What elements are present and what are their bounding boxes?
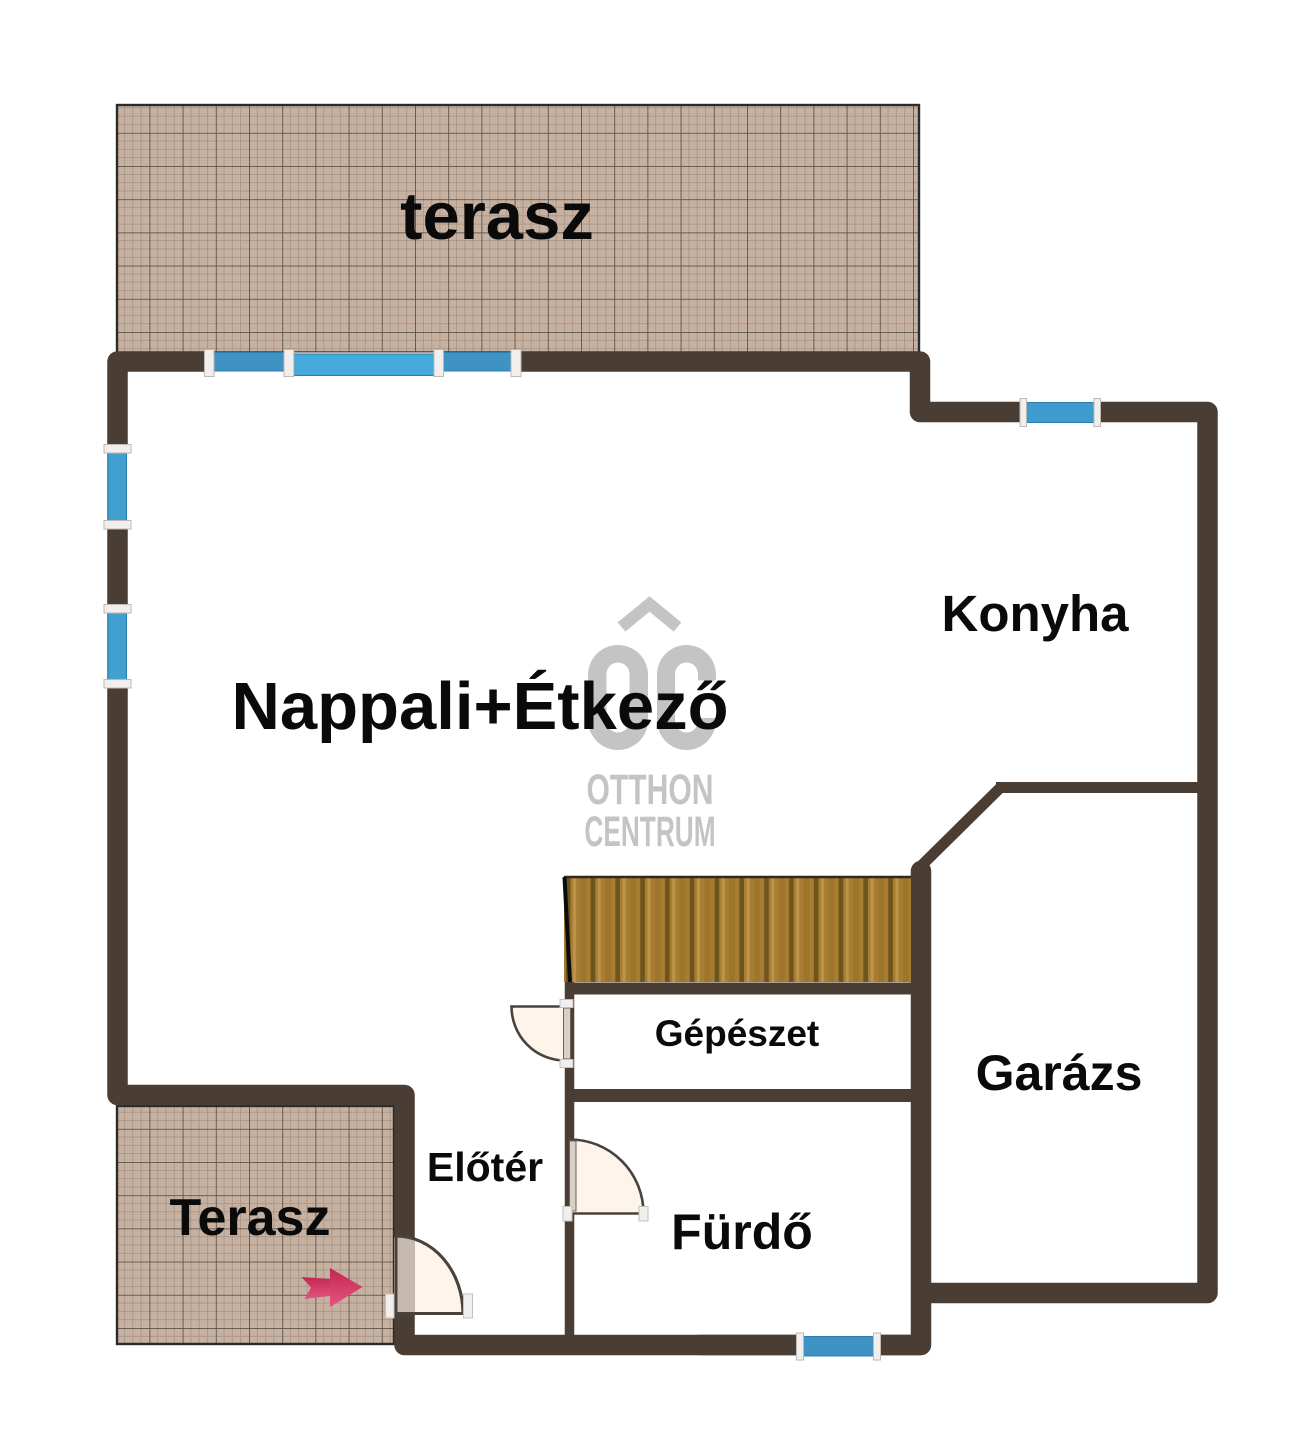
svg-text:Terasz: Terasz [170,1189,331,1247]
svg-text:CENTRUM: CENTRUM [584,807,715,855]
svg-text:Konyha: Konyha [941,585,1129,642]
svg-text:Garázs: Garázs [976,1045,1143,1101]
svg-text:terasz: terasz [400,179,594,254]
svg-text:Gépészet: Gépészet [655,1013,820,1054]
svg-text:Előtér: Előtér [427,1144,543,1190]
svg-text:Nappali+Étkező: Nappali+Étkező [231,669,728,744]
svg-text:OTTHON: OTTHON [586,765,713,814]
svg-text:Fürdő: Fürdő [671,1204,813,1260]
